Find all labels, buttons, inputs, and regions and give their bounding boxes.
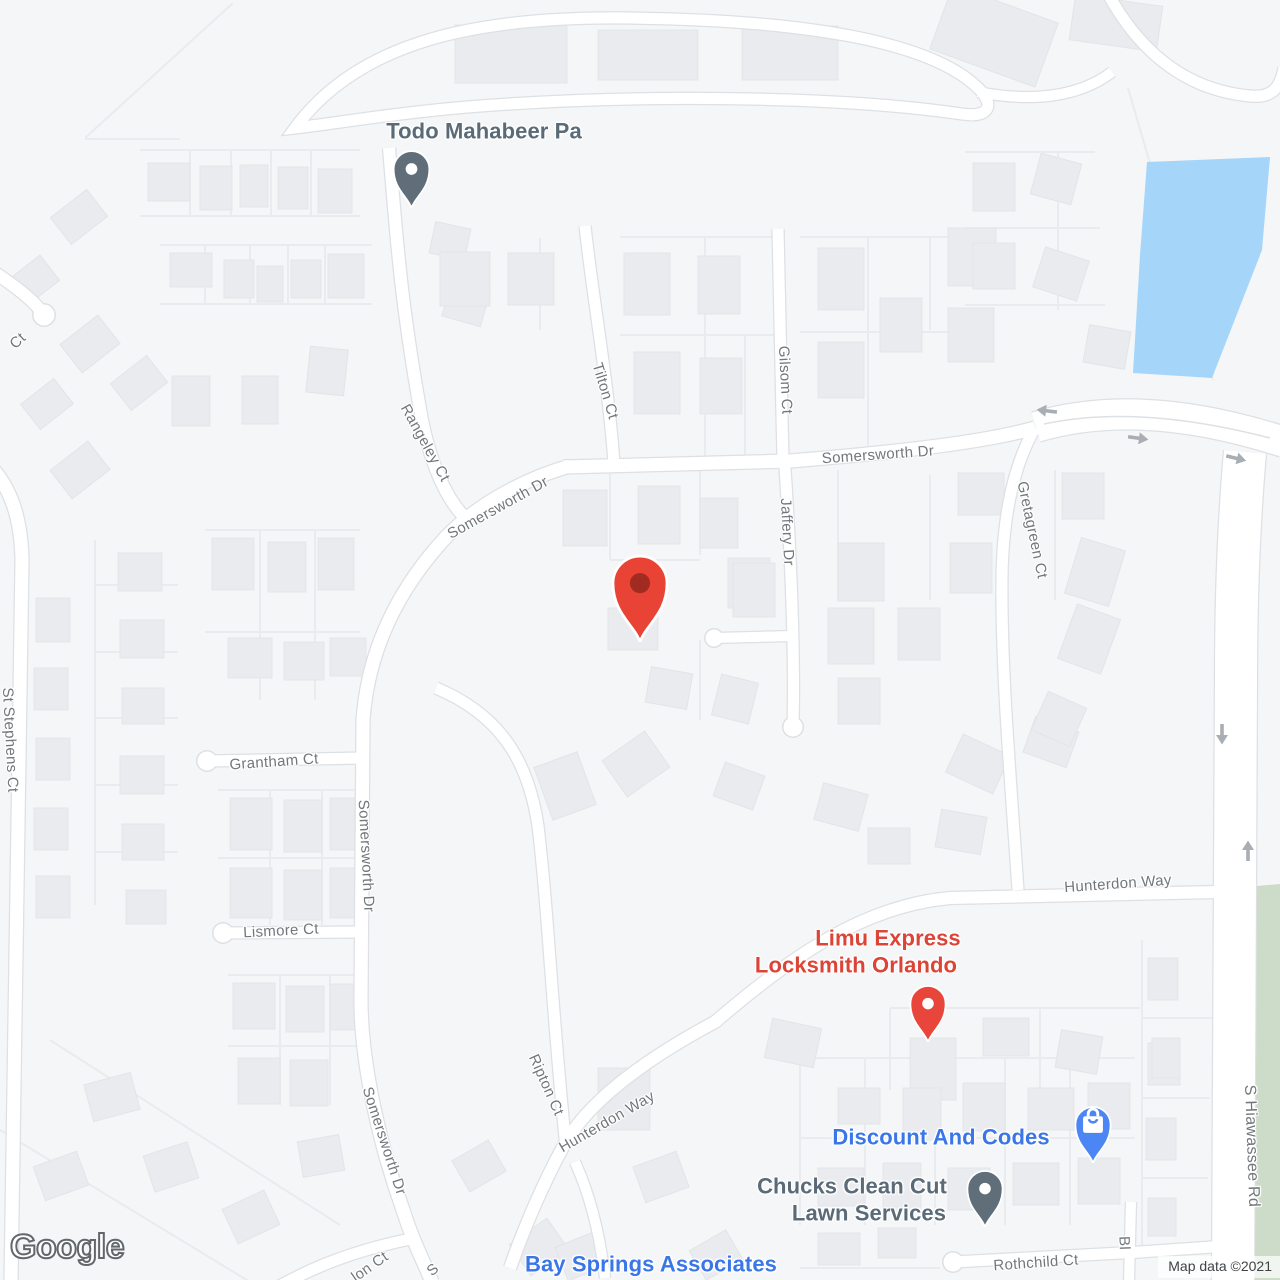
map-viewport[interactable]: Todo Mahabeer PaTilton CtGilsom CtSomers… <box>0 0 1280 1280</box>
shopping-bag-pin-icon <box>1072 1103 1114 1163</box>
map-marker-icon <box>608 550 672 642</box>
balloon-pin-icon <box>390 147 433 208</box>
discount-and-codes-pin[interactable] <box>1072 1103 1114 1168</box>
pins-layer <box>0 0 1280 1280</box>
google-logo[interactable]: Google <box>10 1228 124 1267</box>
map-attribution: Map data ©2021 <box>1158 1256 1280 1278</box>
chucks-lawn-services-pin[interactable] <box>964 1167 1006 1232</box>
limu-express-locksmith-pin[interactable] <box>907 982 949 1047</box>
balloon-pin-icon <box>964 1167 1006 1227</box>
todo-mahabeer-pin[interactable] <box>390 147 433 213</box>
balloon-pin-icon <box>907 982 949 1042</box>
destination-marker[interactable] <box>608 550 672 647</box>
